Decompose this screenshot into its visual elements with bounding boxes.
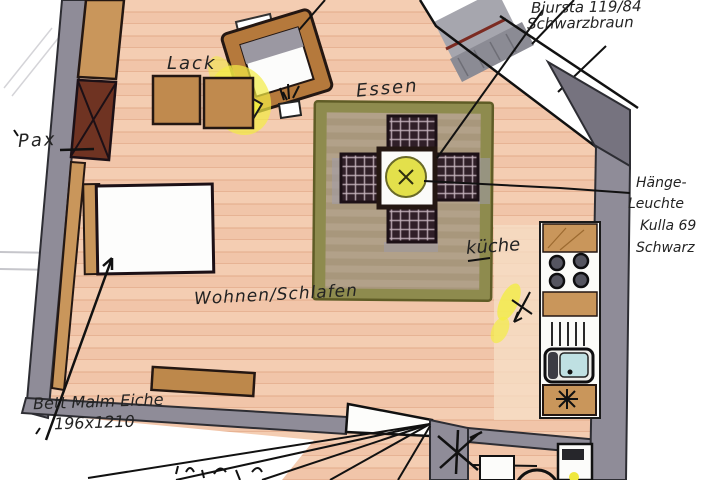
label-haengeleuchte-line3: Kulla 69 (640, 219, 696, 234)
counter-mid-wood (543, 292, 597, 316)
chair-bottom (388, 204, 436, 242)
lack-tables (153, 76, 253, 128)
pencil-marks (4, 28, 60, 96)
floorplan-sketch: Bjursta 119/84 Schwarzbraun Pax Lack Ess… (0, 0, 721, 480)
label-haengeleuchte-line4: Schwarz (636, 241, 695, 256)
label-pax: Pax (18, 130, 58, 152)
label-bjursta-line2: Schwarzbraun (527, 14, 634, 32)
divider-wall (430, 420, 468, 480)
tall-cabinet (78, 0, 124, 79)
label-kueche: küche (465, 235, 520, 259)
label-lack: Lack (167, 54, 216, 74)
pendant-lamp (386, 157, 426, 197)
chair-right (434, 154, 478, 200)
label-bett-line2: 196x1210 (54, 413, 135, 433)
pax-leader (60, 149, 94, 150)
bett-tick (36, 428, 40, 434)
label-haengeleuchte-line1: Hänge- (636, 176, 687, 191)
sideboard (151, 367, 254, 396)
asterisk-mark (556, 389, 578, 409)
chair-left (341, 154, 382, 202)
counter-top-wood (543, 224, 597, 252)
bed (83, 182, 214, 274)
kitchen (540, 222, 600, 418)
label-haengeleuchte-line2: Leuchte (628, 197, 684, 212)
kitchen-sink (545, 349, 593, 382)
